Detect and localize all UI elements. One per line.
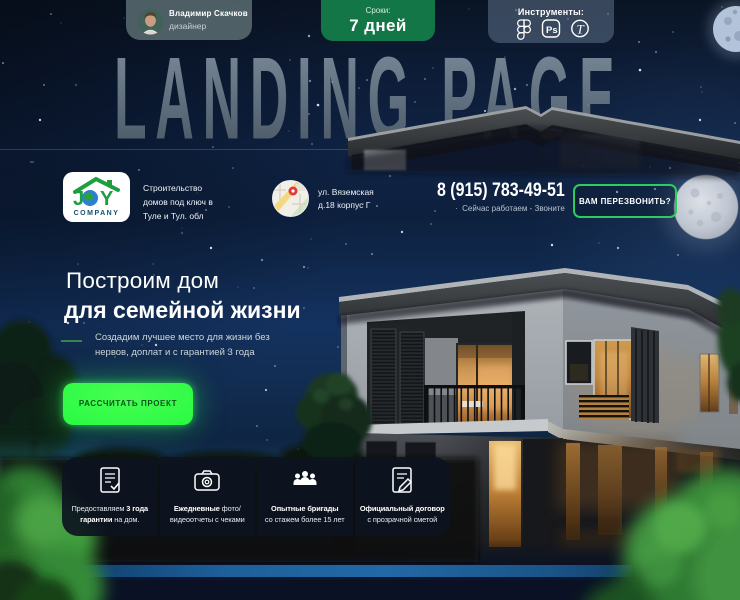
svg-text:T: T	[577, 22, 585, 37]
svg-text:Y: Y	[100, 188, 114, 210]
svg-text:COMPANY: COMPANY	[74, 210, 120, 217]
svg-text:Ps: Ps	[546, 25, 558, 36]
